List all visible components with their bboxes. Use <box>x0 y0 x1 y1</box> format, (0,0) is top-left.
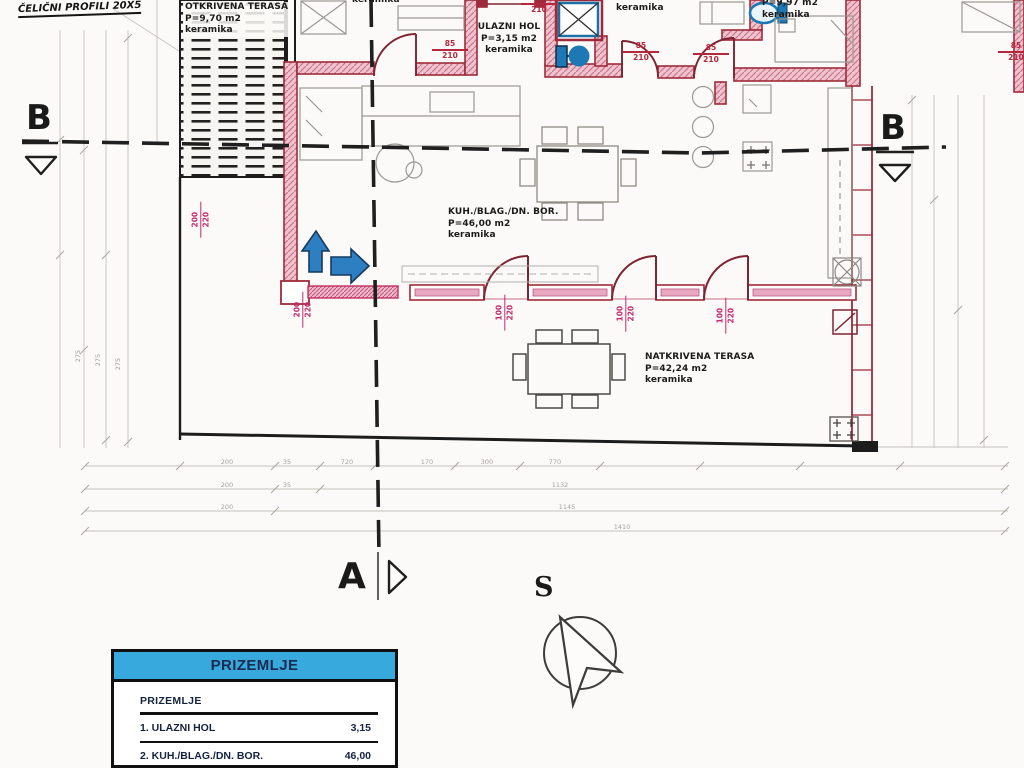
glazed-wall <box>308 285 856 300</box>
dim-number: 170 <box>412 458 442 466</box>
door-dim-200-220: 200 220 <box>191 202 210 238</box>
door-dim-200-220: 200 220 <box>293 292 312 328</box>
dim-number: 200 <box>212 481 242 489</box>
legend-row: 1. ULAZNI HOL 3,15 <box>140 715 375 741</box>
room-label-natkrivena-terasa: NATKRIVENA TERASA P=42,24 m2 keramika <box>645 352 754 387</box>
dim-height: 210 <box>633 54 649 62</box>
dim-number: 1145 <box>552 503 582 511</box>
room-label-top-middle: keramika <box>616 3 664 15</box>
north-compass-icon <box>544 617 621 705</box>
dim-number: 300 <box>472 458 502 466</box>
legend-row: 2. KUH./BLAG./DN. BOR. 46,00 <box>140 743 375 768</box>
room-area: P=42,24 m2 <box>645 364 754 376</box>
room-area: P=9,97 m2 <box>762 0 818 10</box>
room-floor: keramika <box>645 375 754 387</box>
room-floor: keramika <box>472 45 546 57</box>
dim-width: 85 <box>445 40 455 48</box>
room-label-top-right: P=9,97 m2 keramika <box>762 0 818 21</box>
dim-height: 220 <box>728 308 736 324</box>
diagonal-square-icon <box>833 310 857 334</box>
dim-number: 275 <box>74 350 82 362</box>
room-label-ulazni-hol: ULAZNI HOL P=3,15 m2 keramika <box>472 22 546 57</box>
legend-table-body: PRIZEMLJE 1. ULAZNI HOL 3,15 2. KUH./BLA… <box>114 682 395 768</box>
room-floor: keramika <box>762 10 818 22</box>
dim-number: 200 <box>212 503 242 511</box>
floor-plan-scan: ČELIČNI PROFILI 20X5 OTKRIVENA TERASA P=… <box>0 0 1024 768</box>
dim-height: 210 <box>442 52 458 60</box>
dim-height: 210 <box>703 56 719 64</box>
room-area: P=46,00 m2 <box>448 219 559 231</box>
room-name: OTKRIVENA TERASA <box>185 2 288 14</box>
dim-width: 85 <box>706 44 716 52</box>
door-dim-85-210: 85 210 <box>998 42 1024 62</box>
room-floor: keramika <box>448 230 559 242</box>
dim-width: 85 <box>636 42 646 50</box>
legend-table: PRIZEMLJE PRIZEMLJE 1. ULAZNI HOL 3,15 2… <box>111 649 398 768</box>
dim-height: 220 <box>628 306 636 322</box>
room-name: NATKRIVENA TERASA <box>645 352 754 364</box>
section-line-b <box>22 141 946 181</box>
dim-width: 200 <box>293 302 301 318</box>
column-icon <box>833 258 861 286</box>
dim-height: 210 <box>531 6 547 14</box>
drain-grid-icon <box>830 417 858 441</box>
dim-number: 35 <box>272 481 302 489</box>
door-dim-85-210: 85 210 <box>693 44 729 64</box>
toilet-icon <box>556 46 590 68</box>
dim-number: 1410 <box>607 523 637 531</box>
entrance-arrow-up-icon <box>302 231 329 272</box>
door-dim-100-220: 100 220 <box>616 296 635 332</box>
section-marker-b-left: B <box>26 98 52 138</box>
dim-width: 100 <box>616 306 624 322</box>
dim-height: 210 <box>1008 54 1024 62</box>
legend-table-subtitle: PRIZEMLJE <box>140 695 395 707</box>
room-area: P=3,15 m2 <box>472 34 546 46</box>
legend-table-header: PRIZEMLJE <box>114 652 395 682</box>
dim-number: 1132 <box>545 481 575 489</box>
legend-row-label: 1. ULAZNI HOL <box>140 722 215 734</box>
room-name: ULAZNI HOL <box>472 22 546 34</box>
room-label-otkrivena-terasa: OTKRIVENA TERASA P=9,70 m2 keramika <box>183 2 290 37</box>
legend-row-value: 3,15 <box>351 722 375 734</box>
room-floor: keramika <box>185 25 288 37</box>
dim-number: 200 <box>212 458 242 466</box>
dim-number: 275 <box>114 358 122 370</box>
door-dim-85-210: 85 210 <box>432 40 468 60</box>
shaft-icon <box>556 0 602 40</box>
north-label: S <box>534 572 554 603</box>
corner-block <box>852 441 878 452</box>
door-dim-72-210: 72 210 <box>521 0 557 14</box>
legend-row-label: 2. KUH./BLAG./DN. BOR. <box>140 750 263 762</box>
dim-number: 770 <box>540 458 570 466</box>
dim-number: 275 <box>94 354 102 366</box>
room-label-kuh-blag-dn-bor: KUH./BLAG./DN. BOR. P=46,00 m2 keramika <box>448 207 559 242</box>
dim-width: 100 <box>716 308 724 324</box>
stove-burners-icon <box>747 146 770 169</box>
legend-row-value: 46,00 <box>345 750 375 762</box>
dim-height: 220 <box>203 212 211 228</box>
room-label-top-partial: keramika <box>352 0 400 7</box>
dim-width: 200 <box>191 212 199 228</box>
door-dim-100-220: 100 220 <box>716 298 735 334</box>
door-dim-85-210: 85 210 <box>623 42 659 62</box>
section-marker-b-right: B <box>880 108 906 148</box>
dim-number: 720 <box>332 458 362 466</box>
section-marker-a: A <box>338 556 366 597</box>
dim-width: 100 <box>495 305 503 321</box>
door-dim-100-220: 100 220 <box>495 295 514 331</box>
dim-width: 85 <box>1011 42 1021 50</box>
dim-width: 72 <box>534 0 544 2</box>
room-area: P=9,70 m2 <box>185 14 288 26</box>
dim-height: 220 <box>507 305 515 321</box>
section-line-a <box>371 0 406 600</box>
entrance-arrow-right-icon <box>331 249 369 283</box>
dim-height: 220 <box>305 302 313 318</box>
room-name: KUH./BLAG./DN. BOR. <box>448 207 559 219</box>
dim-number: 35 <box>272 458 302 466</box>
dining-table-terrace <box>513 330 625 408</box>
